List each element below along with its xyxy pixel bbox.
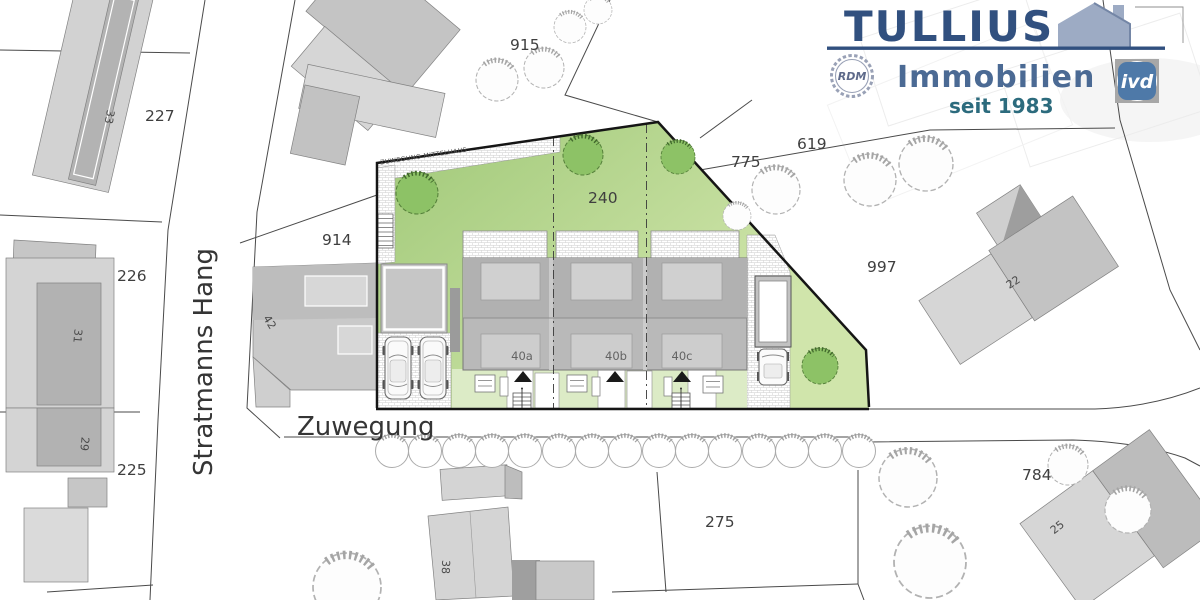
street-label-stratmanns-hang: Stratmanns Hang — [189, 248, 219, 476]
house-label-40c: 40c — [672, 349, 693, 363]
parcel-label-275: 275 — [705, 513, 735, 531]
building-label-29: 29 — [77, 436, 91, 451]
terrace-40c — [651, 231, 739, 259]
house-row: 40a 40b 40c — [463, 258, 747, 370]
ivd-badge-icon: ivd — [1115, 59, 1159, 103]
rdm-text: RDM — [838, 70, 867, 83]
parcel-label-240: 240 — [588, 189, 618, 207]
logo-line2: Immobilien — [897, 60, 1095, 95]
logo-brand: TULLIUS — [844, 2, 1054, 51]
terrace-40a — [463, 231, 547, 259]
house-label-40a: 40a — [511, 349, 533, 363]
parked-car-2 — [418, 337, 449, 399]
neighbor-building-42 — [253, 263, 377, 407]
truck-icon — [755, 276, 791, 385]
street-label-zuwegung: Zuwegung — [297, 412, 435, 442]
site-plan: 40a 40b 40c — [0, 0, 1200, 600]
building-label-38: 38 — [439, 560, 452, 574]
site-plan-page: 40a 40b 40c — [0, 0, 1200, 600]
lawn-stairs-icon — [378, 214, 393, 248]
logo-underline — [827, 47, 1165, 50]
parcel-label-225: 225 — [117, 461, 147, 479]
parcel-label-226: 226 — [117, 267, 147, 285]
house-label-40b: 40b — [605, 349, 627, 363]
parcel-label-619: 619 — [797, 135, 827, 153]
house-logo-icon — [1058, 3, 1130, 47]
parcel-label-784: 784 — [1022, 466, 1052, 484]
terrace-40b — [556, 231, 638, 259]
rdm-seal-icon: RDM — [832, 56, 873, 97]
neighbor-buildings-915 — [290, 0, 460, 165]
building-label-31: 31 — [70, 328, 84, 343]
neighbor-building-22 — [896, 164, 1118, 368]
neighbor-building-33 — [32, 0, 154, 193]
parcel-label-915: 915 — [510, 36, 540, 54]
ivd-text: ivd — [1121, 71, 1154, 93]
building-label-33: 33 — [102, 109, 117, 125]
parked-car-1 — [383, 337, 414, 399]
parcel-label-997: 997 — [867, 258, 897, 276]
parcel-label-775: 775 — [731, 153, 761, 171]
neighbor-building-31 — [6, 240, 114, 408]
neighbor-building-29 — [6, 408, 114, 582]
street-bush-row — [376, 435, 876, 468]
parcel-label-914: 914 — [322, 231, 352, 249]
logo-since: seit 1983 — [949, 94, 1054, 118]
parcel-label-227: 227 — [145, 107, 175, 125]
neighbor-building-38 — [428, 465, 594, 600]
